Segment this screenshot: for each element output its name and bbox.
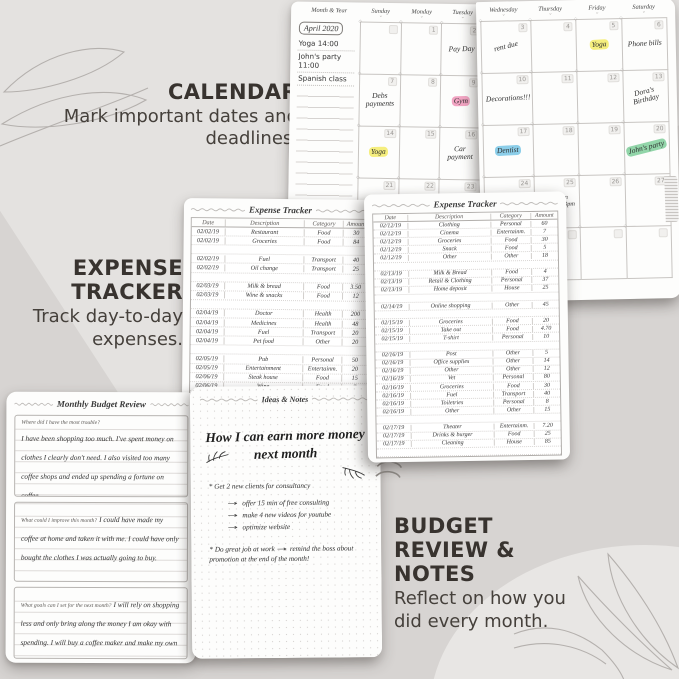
expense-table-right: Date Description Category Amount 02/12/1… bbox=[372, 211, 562, 459]
notes-sub-item-text: make 4 new videos for youtube bbox=[242, 508, 331, 521]
day-number: 25 bbox=[564, 178, 576, 187]
expense-category: Food bbox=[305, 229, 344, 236]
expense-page-title: Expense Tracker bbox=[434, 199, 497, 210]
calendar-cell: 7 Debs payments bbox=[359, 75, 400, 128]
squiggle-decoration bbox=[150, 402, 189, 407]
expense-category: Health bbox=[304, 311, 343, 318]
budget-handwriting: I have been shopping too much. I've spen… bbox=[21, 434, 174, 498]
expense-date: 02/12/19 bbox=[373, 223, 408, 230]
column-header-date: Date bbox=[192, 219, 226, 226]
expense-amount: 30 bbox=[532, 236, 558, 242]
expense-category: Other bbox=[304, 338, 343, 345]
day-number: 4 bbox=[563, 22, 572, 31]
expense-category: Transport bbox=[304, 329, 343, 336]
feature-calendar: CALENDAR Mark important dates and deadli… bbox=[23, 80, 298, 151]
calendar-cell: 15 bbox=[399, 127, 440, 180]
budget-section: What goals can I set for the next month?… bbox=[14, 587, 188, 660]
notes-title-row: Ideas & Notes bbox=[200, 392, 370, 405]
expense-amount: 48 bbox=[343, 320, 368, 327]
expense-title-row: Expense Tracker bbox=[191, 203, 370, 217]
notes-sub-item-text: offer 15 min of free consulting bbox=[242, 496, 329, 509]
calendar-note: Decorations!!! bbox=[484, 92, 531, 105]
expense-description: Snack bbox=[409, 246, 492, 253]
expense-date bbox=[376, 420, 411, 421]
day-number: 14 bbox=[384, 129, 396, 138]
expense-category: Food bbox=[304, 293, 343, 300]
expense-amount: 25 bbox=[535, 431, 561, 437]
expense-amount: 20 bbox=[343, 329, 368, 336]
expense-date: 02/15/19 bbox=[375, 336, 410, 343]
notes-sub-item-text: optimize website bbox=[242, 521, 290, 533]
feature-calendar-heading: CALENDAR bbox=[23, 80, 298, 104]
expense-description: Fuel bbox=[225, 255, 305, 263]
calendar-note: Phone bills bbox=[625, 38, 663, 50]
calendar-note: Dora's Birthday bbox=[623, 82, 669, 111]
calendar-cell: 8 bbox=[400, 75, 441, 128]
expense-amount: 7 bbox=[532, 228, 558, 234]
expense-amount: 5 bbox=[534, 350, 560, 356]
expense-amount: 18 bbox=[532, 253, 558, 259]
expense-description bbox=[225, 304, 305, 305]
squiggle-decoration bbox=[312, 396, 370, 402]
expense-category: Food bbox=[492, 269, 533, 276]
expense-description bbox=[411, 418, 494, 419]
expense-date: 02/13/19 bbox=[374, 287, 409, 294]
day-header: Monday bbox=[401, 8, 442, 23]
calendar-cell: 12 bbox=[577, 71, 624, 124]
expense-date: 02/05/19 bbox=[190, 364, 224, 371]
expense-description: Drinks & burger bbox=[412, 432, 495, 439]
day-number: 21 bbox=[383, 181, 395, 190]
budget-sections: Where did I have the most trouble?I have… bbox=[14, 415, 189, 660]
month-year-header: Month & Year bbox=[298, 7, 360, 22]
expense-description: Cleaning bbox=[412, 440, 495, 447]
expense-description: Online shopping bbox=[410, 302, 493, 309]
expense-category: Food bbox=[491, 237, 532, 244]
expense-date: 02/16/19 bbox=[376, 392, 411, 399]
budget-prompt: What goals can I set for the next month? bbox=[21, 603, 112, 609]
squiggle-decoration bbox=[500, 200, 558, 206]
expense-amount: 15 bbox=[534, 406, 560, 412]
expense-category: Food bbox=[491, 245, 532, 252]
expense-description bbox=[410, 313, 493, 314]
expense-date bbox=[374, 266, 409, 267]
expense-category: Food bbox=[305, 238, 344, 245]
day-header: Sunday bbox=[360, 8, 401, 23]
expense-date bbox=[375, 347, 410, 348]
expense-date: 02/16/19 bbox=[376, 384, 411, 391]
day-number: 5 bbox=[609, 21, 618, 30]
sidebar-note: John's party 11:00 bbox=[297, 51, 354, 73]
expense-amount: 14 bbox=[534, 358, 560, 364]
calendar-cell bbox=[360, 23, 401, 76]
expense-date: 02/05/19 bbox=[190, 355, 224, 362]
calendar-cell: 1 bbox=[401, 23, 442, 76]
expense-date: 02/02/19 bbox=[192, 237, 226, 244]
expense-row bbox=[377, 446, 561, 457]
column-header-category: Category bbox=[305, 220, 344, 227]
expense-description: Oil change bbox=[225, 264, 305, 272]
expense-date: 02/12/19 bbox=[374, 255, 409, 262]
expense-description: Theater bbox=[411, 424, 494, 431]
calendar-note: Car payment bbox=[441, 144, 479, 164]
expense-amount: 15 bbox=[342, 375, 367, 382]
expense-category bbox=[493, 345, 533, 346]
expense-description bbox=[409, 297, 492, 298]
expense-category bbox=[495, 450, 535, 451]
budget-title-row: Monthly Budget Review bbox=[14, 398, 188, 411]
budget-prompt: What could I improve this month? bbox=[21, 518, 97, 524]
expense-date: 02/03/19 bbox=[191, 291, 225, 298]
expense-date: 02/12/19 bbox=[374, 239, 409, 246]
expense-category: Personal bbox=[491, 221, 532, 228]
expense-date bbox=[377, 452, 412, 453]
expense-amount: 37 bbox=[532, 277, 558, 283]
calendar-cell: 14 Yoga bbox=[359, 127, 400, 180]
expense-category: Personal bbox=[304, 356, 343, 363]
expense-date: 02/15/19 bbox=[375, 328, 410, 335]
calendar-cell bbox=[626, 226, 673, 279]
expense-amount: 50 bbox=[343, 357, 368, 364]
expense-category: Other bbox=[492, 253, 533, 260]
expense-date: 02/03/19 bbox=[191, 282, 225, 289]
sidebar-note: Yoga 14:00 bbox=[298, 38, 355, 52]
expense-date: 02/17/19 bbox=[377, 425, 412, 432]
expense-date bbox=[375, 315, 410, 316]
expense-date: 02/13/19 bbox=[374, 279, 409, 286]
calendar-cell: 16 Car payment bbox=[440, 128, 481, 181]
expense-date: 02/04/19 bbox=[191, 310, 225, 317]
column-header-date: Date bbox=[373, 214, 408, 221]
expense-description: Milk & Bread bbox=[409, 270, 492, 277]
day-number: 13 bbox=[653, 72, 665, 81]
expense-category: Transport bbox=[494, 391, 535, 398]
day-number bbox=[613, 229, 622, 238]
sidebar-notes: Yoga 14:00John's party 11:00Spanish clas… bbox=[297, 38, 355, 87]
calendar-cell: 11 bbox=[532, 72, 579, 125]
expense-category: Personal bbox=[494, 374, 535, 381]
notes-bullet1-text: Get 2 new clients for consultancy bbox=[214, 482, 310, 491]
expense-category: Food bbox=[493, 326, 534, 333]
notes-bullet2: *Do great job at work → remind the boss … bbox=[209, 544, 371, 565]
expense-description: Wine & snacks bbox=[225, 292, 305, 300]
day-number: 24 bbox=[519, 179, 531, 188]
expense-date: 02/16/19 bbox=[376, 401, 411, 408]
expense-category bbox=[492, 296, 532, 297]
planner-promo-image: CALENDAR Mark important dates and deadli… bbox=[0, 0, 679, 679]
expense-date: 02/04/19 bbox=[191, 328, 225, 335]
day-number: 12 bbox=[607, 73, 619, 82]
budget-page-title: Monthly Budget Review bbox=[57, 399, 146, 409]
squiggle-decoration bbox=[200, 397, 258, 403]
expense-date: 02/02/19 bbox=[192, 228, 226, 235]
day-number: 1 bbox=[429, 26, 438, 35]
expense-date: 02/17/19 bbox=[377, 441, 412, 448]
sidebar-note: Spanish class bbox=[297, 72, 354, 86]
month-year-value: April 2020 bbox=[299, 22, 344, 36]
expense-category: Transport bbox=[305, 265, 344, 272]
calendar-cell: 6 Phone bills bbox=[622, 18, 669, 71]
budget-review-page: Monthly Budget Review Where did I have t… bbox=[6, 392, 197, 664]
expense-description: T-shirt bbox=[410, 335, 493, 342]
expense-description: Take out bbox=[410, 326, 493, 333]
expense-category: Entertainm. bbox=[491, 229, 532, 236]
day-header: Friday bbox=[573, 4, 620, 19]
expense-description: Retail & Clothing bbox=[409, 278, 492, 285]
day-number: 18 bbox=[563, 126, 575, 135]
calendar-cell: 17 Dentist bbox=[483, 125, 534, 178]
feature-expense-description: Track day-to-day expenses. bbox=[0, 306, 183, 351]
expense-category: House bbox=[492, 285, 533, 292]
expense-amount: 20 bbox=[343, 338, 368, 345]
expense-category bbox=[492, 264, 532, 265]
expense-date: 02/15/19 bbox=[375, 320, 410, 327]
expense-description: Entertainment bbox=[224, 364, 304, 372]
leaf-doodle-icon bbox=[340, 461, 366, 483]
expense-amount: 4.70 bbox=[533, 325, 559, 331]
expense-amount: 40 bbox=[534, 390, 560, 396]
calendar-note: rent due bbox=[491, 38, 521, 55]
expense-category: Personal bbox=[494, 399, 535, 406]
expense-date: 02/04/19 bbox=[191, 319, 225, 326]
squiggle-decoration bbox=[191, 207, 245, 213]
expense-date: 02/16/19 bbox=[376, 376, 411, 383]
day-number: 23 bbox=[465, 182, 477, 191]
expense-category: Health bbox=[304, 320, 343, 327]
calendar-cell: 26 bbox=[580, 175, 627, 228]
ideas-notes-page: Ideas & Notes How I can earn more money … bbox=[190, 385, 382, 659]
expense-date: 02/02/19 bbox=[191, 264, 225, 271]
calendar-note: Pay Day bbox=[447, 44, 477, 55]
expense-description: Restaurant bbox=[225, 228, 305, 236]
arrow-icon: → bbox=[277, 545, 287, 554]
calendar-cell: 5 Yoga bbox=[576, 19, 623, 72]
day-number bbox=[659, 228, 668, 237]
day-number: 3 bbox=[518, 23, 527, 32]
expense-amount: 20 bbox=[342, 366, 367, 373]
expense-date: 02/06/19 bbox=[190, 373, 224, 380]
expense-rows-left: 02/02/19 Restaurant Food 30 02/02/19 Gro… bbox=[190, 227, 369, 402]
expense-description: Vet bbox=[411, 375, 494, 382]
calendar-note: Gym bbox=[452, 96, 470, 107]
expense-category: Entertainm. bbox=[304, 365, 343, 372]
expense-amount: 7.20 bbox=[535, 423, 561, 429]
expense-date: 02/13/19 bbox=[374, 271, 409, 278]
notes-sub-item: → optimize website bbox=[227, 520, 371, 533]
day-header: Saturday bbox=[620, 3, 667, 18]
budget-prompt: Where did I have the most trouble? bbox=[21, 420, 179, 427]
expense-category: Other bbox=[493, 350, 534, 357]
expense-amount: 8 bbox=[534, 398, 560, 404]
day-number: 10 bbox=[516, 75, 528, 84]
expense-amount: 12 bbox=[343, 293, 368, 300]
expense-date: 02/14/19 bbox=[375, 303, 410, 310]
notes-bullets: *Get 2 new clients for consultancy → off… bbox=[201, 481, 372, 565]
day-number: 17 bbox=[517, 127, 529, 136]
expense-description: Groceries bbox=[410, 318, 493, 325]
expense-description bbox=[409, 265, 492, 266]
notes-sub-items: → offer 15 min of free consulting → make… bbox=[227, 496, 371, 533]
squiggle-decoration bbox=[316, 208, 370, 214]
calendar-note: Dentist bbox=[495, 145, 521, 157]
expense-category: Food bbox=[304, 283, 343, 290]
expense-amount: 20 bbox=[533, 317, 559, 323]
arrow-icon: → bbox=[227, 509, 237, 521]
expense-description: Groceries bbox=[409, 237, 492, 244]
expense-amount: 60 bbox=[532, 220, 558, 226]
calendar-cell: 13 Dora's Birthday bbox=[623, 70, 670, 123]
calendar-cell: 18 bbox=[533, 124, 580, 177]
expense-date: 02/16/19 bbox=[376, 368, 411, 375]
calendar-cell: 10 Decorations!!! bbox=[482, 73, 533, 126]
calendar-note: John's party bbox=[626, 138, 668, 158]
expense-amount: 12 bbox=[534, 366, 560, 372]
feature-expense-heading: EXPENSE TRACKER bbox=[0, 256, 183, 304]
expense-title-row: Expense Tracker bbox=[372, 197, 558, 212]
calendar-note: Yoga bbox=[589, 39, 608, 50]
day-number: 6 bbox=[654, 20, 663, 29]
expense-date: 02/16/19 bbox=[376, 360, 411, 367]
book-page-edges bbox=[664, 176, 679, 222]
feature-expense: EXPENSE TRACKER Track day-to-day expense… bbox=[0, 256, 183, 351]
squiggle-decoration bbox=[372, 202, 430, 208]
calendar-cell: 19 bbox=[579, 123, 626, 176]
expense-description: Fuel bbox=[411, 391, 494, 398]
expense-description: Other bbox=[411, 407, 494, 414]
expense-description: Post bbox=[410, 351, 493, 358]
expense-description: Pet food bbox=[224, 337, 304, 345]
notes-page-title: Ideas & Notes bbox=[262, 394, 309, 403]
expense-category: Other bbox=[492, 302, 533, 309]
calendar-note: Yoga bbox=[369, 147, 388, 158]
expense-category bbox=[494, 418, 534, 419]
calendar-cell: 3 rent due bbox=[481, 21, 532, 74]
budget-section: Where did I have the most trouble?I have… bbox=[14, 415, 188, 498]
day-number: 7 bbox=[388, 77, 397, 86]
expense-amount: 5 bbox=[532, 244, 558, 250]
day-number: 22 bbox=[424, 182, 436, 191]
expense-description: Fuel bbox=[224, 328, 304, 336]
day-header: Thursday bbox=[527, 5, 574, 20]
expense-date: 02/16/19 bbox=[376, 409, 411, 416]
day-number: 11 bbox=[562, 74, 574, 83]
expense-description: Toiletries bbox=[411, 399, 494, 406]
expense-category: Food bbox=[303, 374, 342, 381]
calendar-note: Debs payments bbox=[360, 91, 398, 111]
column-header-description: Description bbox=[408, 213, 491, 220]
expense-category: Food bbox=[493, 318, 534, 325]
expense-date: 02/12/19 bbox=[374, 247, 409, 254]
expense-category: Entertainm. bbox=[494, 423, 535, 430]
expense-description: Doctor bbox=[224, 310, 304, 318]
expense-category: Food bbox=[494, 431, 535, 438]
expense-amount: 45 bbox=[533, 301, 559, 307]
calendar-cell: 9 Gym bbox=[441, 76, 482, 129]
expense-amount: 25 bbox=[533, 285, 559, 291]
column-header-amount: Amount bbox=[531, 212, 557, 218]
expense-amount: 200 bbox=[343, 311, 368, 318]
expense-category: Other bbox=[493, 358, 534, 365]
expense-amount: 80 bbox=[534, 374, 560, 380]
expense-category: Food bbox=[494, 382, 535, 389]
feature-budget-description: Reflect on how you did every month. bbox=[394, 588, 584, 633]
arrow-icon: → bbox=[227, 497, 237, 509]
expense-category: Personal bbox=[492, 277, 533, 284]
expense-description bbox=[225, 250, 305, 251]
notes-headline: How I can earn more money next month bbox=[200, 425, 371, 465]
expense-category: Transport bbox=[305, 256, 344, 263]
expense-description: Steak house bbox=[224, 374, 304, 382]
expense-amount: 85 bbox=[535, 439, 561, 445]
expense-table-left: Date Description Category Amount 02/02/1… bbox=[189, 217, 370, 403]
expense-date: 02/12/19 bbox=[373, 231, 408, 238]
expense-description bbox=[225, 277, 305, 278]
notes-bullet2-text: Do great job at work bbox=[215, 545, 275, 554]
expense-description: Groceries bbox=[411, 383, 494, 390]
squiggle-decoration bbox=[14, 401, 53, 406]
expense-rows-right: 02/12/19 Clothing Personal 60 02/12/19 C… bbox=[373, 220, 561, 458]
column-header-category: Category bbox=[491, 213, 532, 220]
expense-date bbox=[375, 298, 410, 299]
budget-section: What could I improve this month?I could … bbox=[14, 502, 188, 583]
expense-description: Home deposit bbox=[409, 286, 492, 293]
expense-description: Cinema bbox=[408, 229, 491, 236]
day-number bbox=[389, 25, 398, 34]
expense-category: Other bbox=[494, 407, 535, 414]
day-number bbox=[568, 230, 577, 239]
expense-page-title: Expense Tracker bbox=[249, 205, 312, 216]
calendar-cell bbox=[581, 227, 628, 280]
calendar-cell: 4 bbox=[531, 20, 578, 73]
column-header-description: Description bbox=[225, 219, 305, 227]
day-header: Wednesday bbox=[480, 6, 527, 21]
feature-budget-heading: BUDGET REVIEW & NOTES bbox=[394, 514, 584, 586]
expense-description: Medicines bbox=[224, 319, 304, 327]
expense-description: Pub bbox=[224, 355, 304, 363]
expense-description: Office supplies bbox=[410, 359, 493, 366]
expense-description bbox=[410, 346, 493, 347]
calendar-cell: 20 John's party bbox=[624, 122, 671, 175]
day-number: 19 bbox=[608, 125, 620, 134]
arrow-icon: → bbox=[228, 521, 238, 533]
day-number: 26 bbox=[609, 177, 621, 186]
expense-amount: 30 bbox=[534, 382, 560, 388]
expense-date: 02/17/19 bbox=[377, 433, 412, 440]
expense-description bbox=[224, 350, 304, 351]
expense-amount: 4 bbox=[532, 269, 558, 275]
expense-page-right: Expense Tracker Date Description Categor… bbox=[364, 191, 570, 462]
expense-description: Other bbox=[409, 254, 492, 261]
expense-description: Groceries bbox=[225, 237, 305, 245]
expense-description: Other bbox=[411, 367, 494, 374]
bullet-icon: * bbox=[209, 545, 213, 553]
expense-description bbox=[412, 451, 495, 452]
expense-category bbox=[493, 313, 533, 314]
expense-category: House bbox=[495, 439, 536, 446]
expense-description: Clothing bbox=[408, 221, 491, 228]
day-number: 8 bbox=[428, 78, 437, 87]
day-number: 16 bbox=[466, 130, 478, 139]
day-number: 20 bbox=[654, 124, 666, 133]
expense-page-left: Expense Tracker Date Description Categor… bbox=[182, 198, 377, 401]
expense-date: 02/04/19 bbox=[191, 337, 225, 344]
expense-amount: 10 bbox=[533, 334, 559, 340]
day-number: 15 bbox=[425, 130, 437, 139]
expense-description: Milk & bread bbox=[225, 283, 305, 291]
expense-category: Other bbox=[493, 366, 534, 373]
bullet-icon: * bbox=[209, 483, 213, 491]
expense-category: Personal bbox=[493, 334, 534, 341]
